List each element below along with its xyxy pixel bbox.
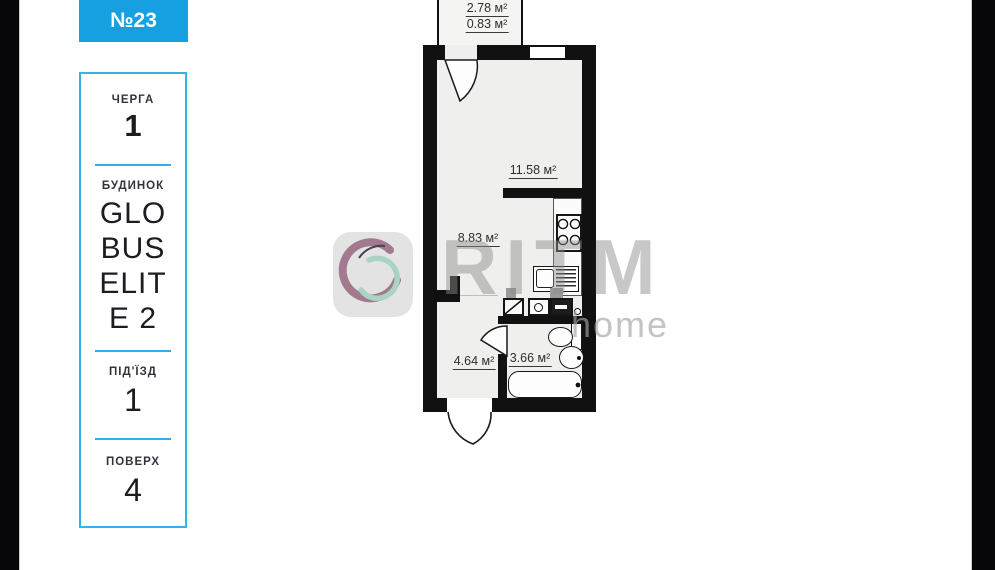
ritm-logo-tile: [333, 232, 413, 317]
divider: [95, 164, 171, 166]
hallway-area-label: 4.64 м²: [453, 354, 496, 368]
window-icon: [530, 45, 565, 60]
wall-top-mid: [477, 45, 530, 60]
entrance-label: ПІД'ЇЗД: [81, 366, 185, 378]
floor-value: 4: [81, 472, 185, 509]
wall-bottom-right: [492, 398, 596, 412]
balcony-reduced-area-label: 0.83 м²: [466, 17, 509, 31]
letterbox-left: [0, 0, 20, 570]
apartment-number-badge: №23: [79, 0, 188, 42]
entrance-door-fill: [448, 412, 491, 444]
floorplan-card: №23 ЧЕРГА 1 БУДИНОК GLOBUS ELITE 2 ПІД'Ї…: [0, 0, 995, 570]
entrance-opening: [447, 398, 492, 412]
info-panel: ЧЕРГА 1 БУДИНОК GLOBUS ELITE 2 ПІД'ЇЗД 1…: [79, 72, 187, 528]
washbasin-icon: [559, 346, 584, 369]
wall-bathroom-left: [498, 354, 507, 412]
balcony-total-area-label: 2.78 м²: [466, 1, 509, 15]
apartment-number: №23: [110, 9, 157, 33]
divider: [95, 350, 171, 352]
divider: [95, 438, 171, 440]
balcony-wall: [437, 0, 439, 45]
letterbox-right: [971, 0, 995, 570]
building-value: GLOBUS ELITE 2: [94, 196, 172, 336]
watermark-brand: RITM: [441, 228, 664, 306]
living-room-area-label: 11.58 м²: [509, 163, 558, 177]
building-label: БУДИНОК: [81, 180, 185, 192]
ritm-swirl-logo-icon: [333, 232, 413, 317]
watermark-sub: home: [571, 306, 669, 344]
queue-value: 1: [81, 108, 185, 144]
bathroom-area-label: 3.66 м²: [509, 351, 552, 365]
floor-label: ПОВЕРХ: [81, 456, 185, 468]
entrance-door-icon: [448, 412, 491, 444]
balcony-wall: [521, 0, 523, 45]
toilet-icon: [548, 327, 573, 347]
wall-kitchen-stub: [503, 188, 582, 198]
bathtub-icon: [508, 371, 582, 398]
queue-label: ЧЕРГА: [81, 94, 185, 106]
wall-bottom-left: [423, 398, 447, 412]
wall-left: [423, 45, 437, 412]
entrance-value: 1: [81, 382, 185, 419]
